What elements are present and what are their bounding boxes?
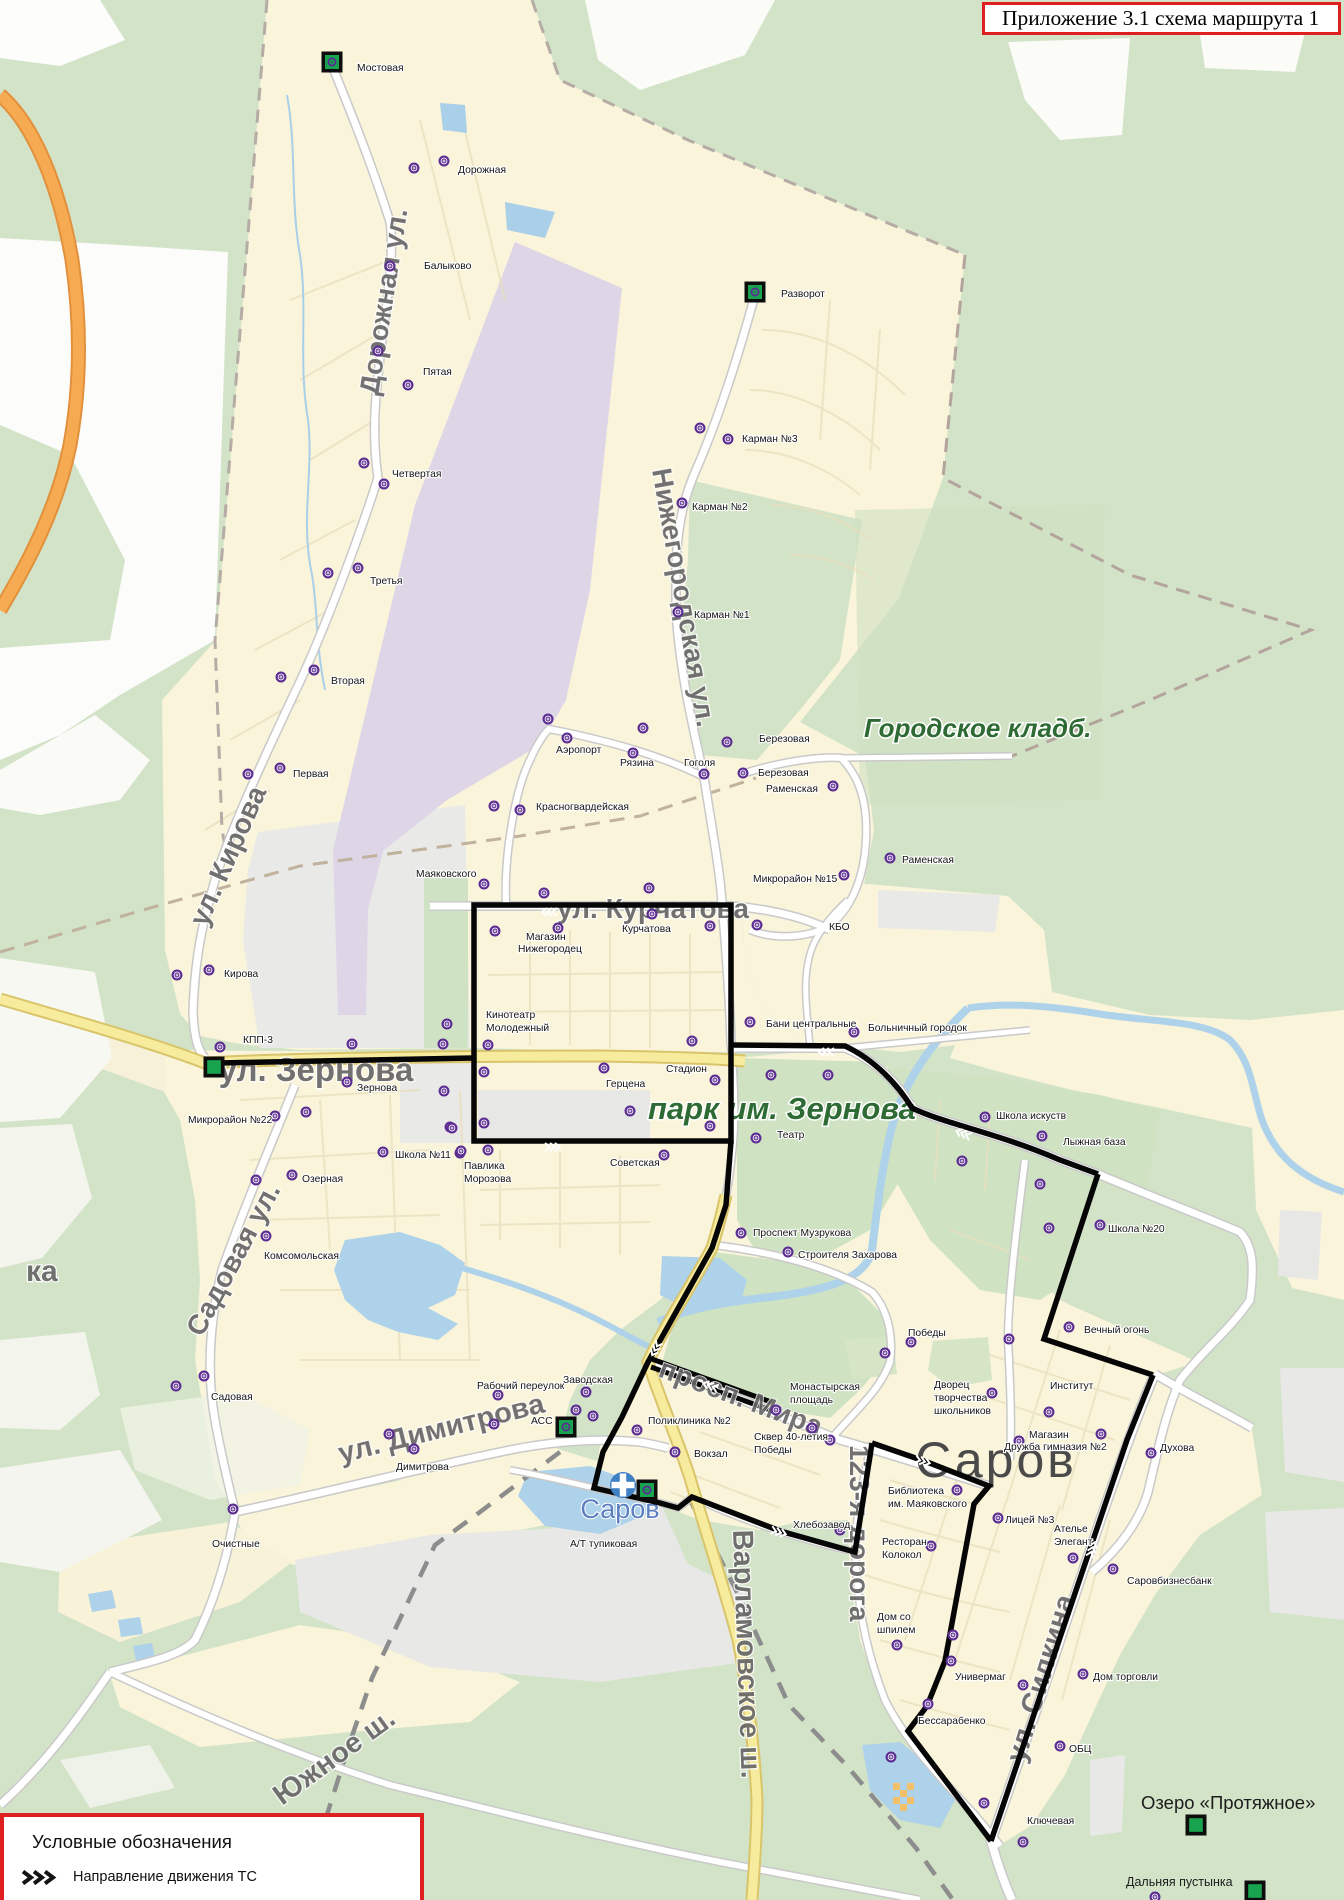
svg-text:Рязина: Рязина (620, 758, 654, 769)
svg-text:Дворец: Дворец (934, 1380, 970, 1391)
svg-text:Универмаг: Универмаг (955, 1672, 1006, 1683)
svg-text:парк им. Зернова: парк им. Зернова (648, 1091, 916, 1126)
svg-text:Аэропорт: Аэропорт (556, 745, 602, 756)
svg-text:Хлебозавод: Хлебозавод (793, 1519, 850, 1531)
svg-text:Микрорайон №22: Микрорайон №22 (188, 1115, 273, 1126)
svg-text:Морозова: Морозова (464, 1174, 511, 1185)
svg-text:Курчатова: Курчатова (622, 924, 671, 935)
svg-text:Дружба гимназия №2: Дружба гимназия №2 (1004, 1441, 1107, 1453)
svg-text:Зернова: Зернова (357, 1083, 397, 1094)
svg-text:Городское кладб.: Городское кладб. (864, 713, 1091, 743)
svg-text:А/Т тупиковая: А/Т тупиковая (570, 1539, 637, 1550)
svg-text:Стадион: Стадион (666, 1064, 707, 1075)
svg-text:Мостовая: Мостовая (357, 63, 404, 74)
svg-text:КБО: КБО (829, 922, 850, 933)
svg-text:Монастырская: Монастырская (790, 1382, 860, 1393)
svg-text:КПП-3: КПП-3 (243, 1035, 273, 1046)
svg-text:Третья: Третья (370, 576, 402, 587)
svg-text:Рабочий переулок: Рабочий переулок (477, 1380, 565, 1392)
svg-text:Кирова: Кирова (224, 969, 259, 980)
svg-text:Микрорайон №15: Микрорайон №15 (753, 874, 838, 885)
svg-text:Карман №2: Карман №2 (692, 502, 748, 513)
svg-text:Заводская: Заводская (563, 1375, 613, 1386)
svg-text:Больничный городок: Больничный городок (868, 1023, 967, 1034)
svg-text:Карман №3: Карман №3 (742, 434, 798, 445)
svg-text:Нижегородец: Нижегородец (518, 944, 582, 955)
svg-text:Бани центральные: Бани центральные (766, 1019, 857, 1030)
svg-text:школьников: школьников (934, 1406, 992, 1417)
svg-text:Лыжная база: Лыжная база (1063, 1136, 1126, 1148)
svg-text:АСС: АСС (531, 1416, 553, 1427)
svg-text:Элегант: Элегант (1054, 1537, 1093, 1548)
svg-text:Дорожная: Дорожная (458, 165, 506, 176)
svg-text:площадь: площадь (790, 1395, 833, 1406)
svg-text:Дом торговли: Дом торговли (1093, 1672, 1158, 1683)
svg-text:им. Маяковского: им. Маяковского (888, 1499, 967, 1510)
svg-text:Садовая: Садовая (211, 1392, 253, 1403)
svg-text:Магазин: Магазин (526, 932, 566, 943)
svg-text:Балыково: Балыково (424, 261, 472, 272)
svg-text:Поликлиника №2: Поликлиника №2 (648, 1416, 731, 1427)
svg-text:Первая: Первая (293, 769, 329, 780)
svg-text:Бессарабенко: Бессарабенко (918, 1715, 986, 1727)
svg-text:ОБЦ: ОБЦ (1069, 1744, 1092, 1755)
svg-text:Библиотека: Библиотека (888, 1485, 944, 1497)
svg-text:Раменская: Раменская (766, 784, 818, 795)
svg-text:Раменская: Раменская (902, 855, 954, 866)
svg-text:творчества: творчества (934, 1393, 988, 1404)
svg-text:Советская: Советская (610, 1158, 660, 1169)
svg-text:Озеро «Протяжное»: Озеро «Протяжное» (1141, 1792, 1315, 1813)
svg-text:Молодежный: Молодежный (486, 1023, 549, 1034)
svg-text:Ресторан: Ресторан (882, 1537, 927, 1548)
svg-text:Кинотеатр: Кинотеатр (486, 1010, 535, 1021)
svg-text:Озерная: Озерная (302, 1174, 343, 1185)
svg-text:Четвертая: Четвертая (392, 469, 441, 480)
svg-text:Вокзал: Вокзал (694, 1449, 728, 1460)
svg-text:ка: ка (26, 1255, 58, 1288)
svg-text:Саровбизнесбанк: Саровбизнесбанк (1127, 1575, 1212, 1587)
svg-text:Березовая: Березовая (758, 768, 809, 779)
svg-text:Березовая: Березовая (759, 734, 810, 745)
svg-text:Театр: Театр (777, 1130, 805, 1141)
svg-text:Маяковского: Маяковского (416, 869, 477, 880)
svg-text:Проспект Музрукова: Проспект Музрукова (753, 1228, 852, 1239)
svg-text:Карман №1: Карман №1 (694, 610, 750, 621)
svg-text:шпилем: шпилем (877, 1625, 915, 1636)
svg-text:ул. Курчатова: ул. Курчатова (557, 893, 749, 924)
svg-text:Победы: Победы (754, 1444, 792, 1456)
svg-text:Институт: Институт (1050, 1381, 1094, 1392)
svg-text:Очистные: Очистные (212, 1539, 260, 1550)
svg-text:Школа искуств: Школа искуств (996, 1111, 1067, 1122)
svg-text:Школа №11: Школа №11 (395, 1150, 451, 1161)
svg-text:Вечный огонь: Вечный огонь (1084, 1325, 1149, 1336)
svg-text:Ключевая: Ключевая (1027, 1816, 1074, 1827)
svg-text:Герцена: Герцена (606, 1079, 646, 1090)
svg-text:Гоголя: Гоголя (684, 758, 715, 769)
svg-text:Павлика: Павлика (464, 1161, 505, 1172)
svg-text:Победы: Победы (908, 1327, 946, 1339)
svg-text:Дальняя пустынка: Дальняя пустынка (1126, 1875, 1233, 1889)
svg-text:Лицей №3: Лицей №3 (1005, 1515, 1055, 1526)
svg-text:Школа №20: Школа №20 (1108, 1224, 1165, 1235)
svg-text:Строителя Захарова: Строителя Захарова (798, 1250, 897, 1261)
svg-text:Дом со: Дом со (877, 1612, 911, 1623)
svg-text:Пятая: Пятая (423, 367, 452, 378)
svg-text:Разворот: Разворот (781, 289, 825, 300)
svg-text:Духова: Духова (1160, 1443, 1194, 1454)
svg-text:Магазин: Магазин (1029, 1430, 1069, 1441)
svg-text:Комсомольская: Комсомольская (264, 1251, 339, 1262)
svg-text:Димитрова: Димитрова (396, 1462, 449, 1473)
svg-text:Красногвардейская: Красногвардейская (536, 802, 629, 813)
svg-text:Ателье: Ателье (1054, 1524, 1088, 1535)
svg-text:Колокол: Колокол (882, 1550, 921, 1561)
svg-text:Вторая: Вторая (331, 676, 365, 687)
svg-text:Сквер 40-летия: Сквер 40-летия (754, 1432, 828, 1443)
